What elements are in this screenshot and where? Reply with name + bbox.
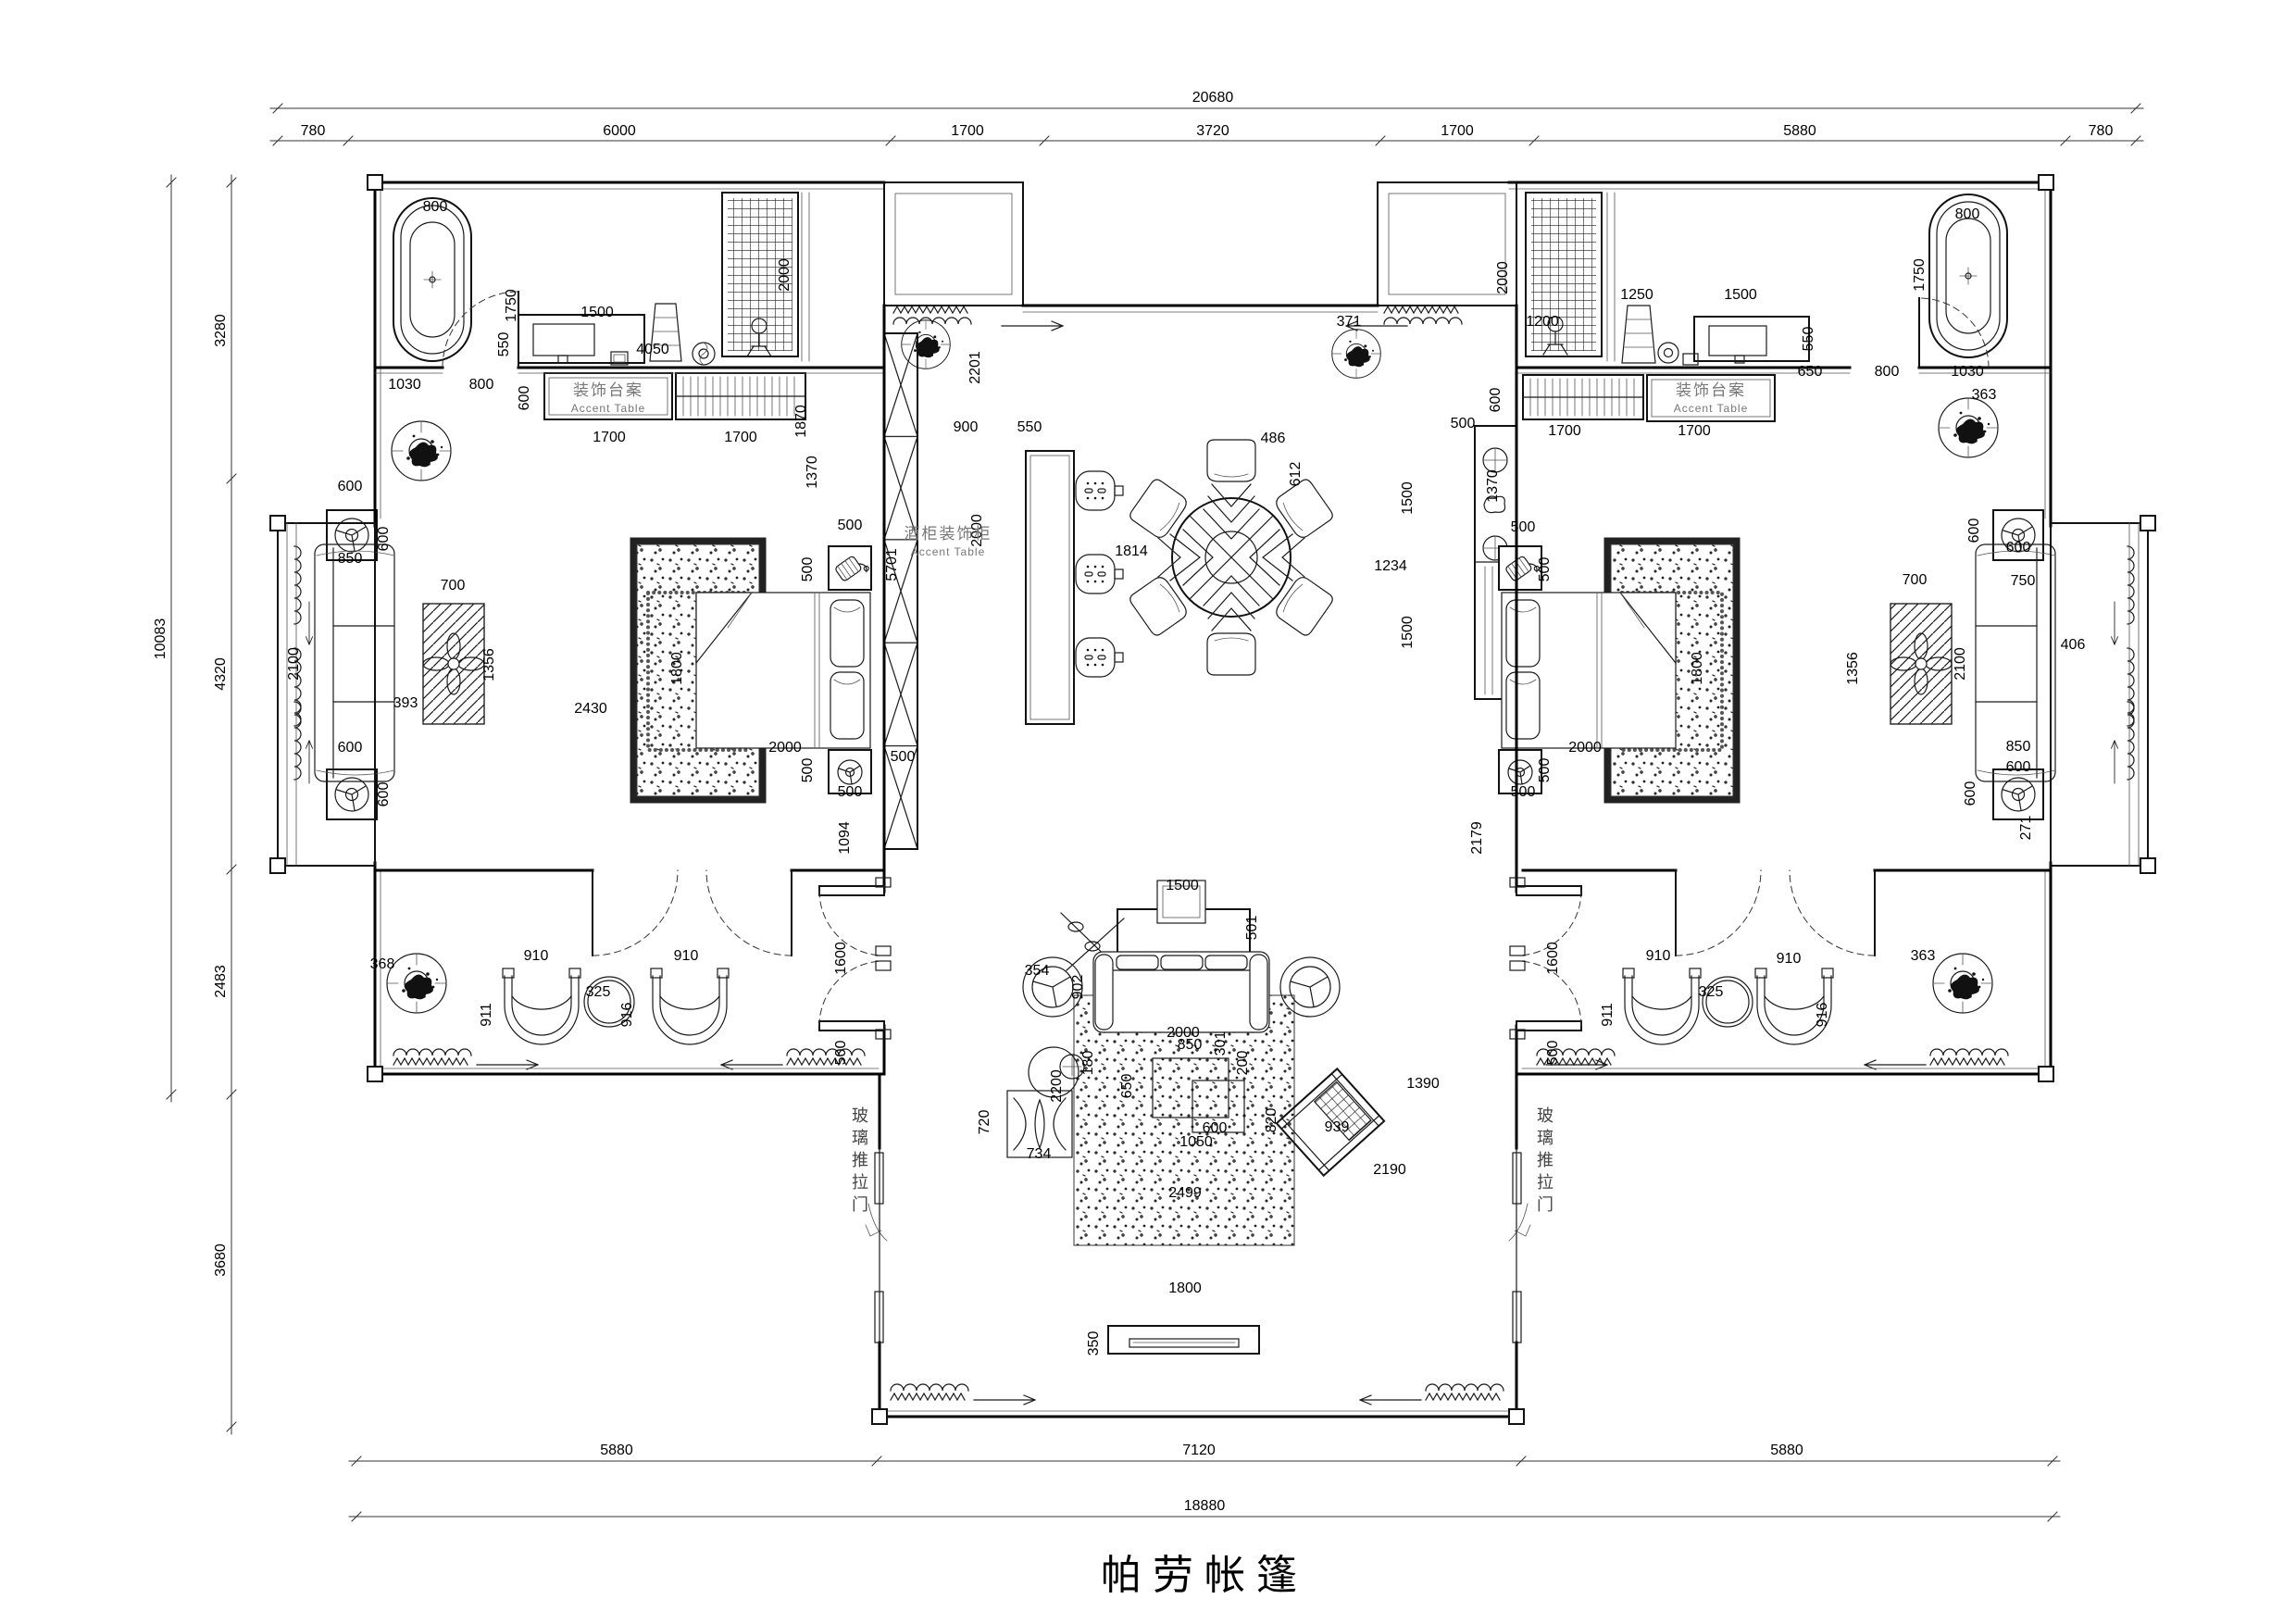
dim-label: 20680 bbox=[1192, 90, 1234, 106]
dim-label: 550 bbox=[1017, 419, 1042, 435]
dim-label: 1500 bbox=[1400, 616, 1416, 649]
drawing-sheet: 2068078060001700372017005880780100833280… bbox=[0, 0, 2296, 1624]
dim-label: 325 bbox=[1699, 984, 1724, 1000]
dim-label: 600 bbox=[2006, 759, 2031, 775]
right-bathroom bbox=[1523, 193, 2007, 457]
dim-label: 850 bbox=[1178, 1037, 1203, 1053]
dim-label: 5880 bbox=[1783, 123, 1816, 139]
dim-label: 600 bbox=[1963, 781, 1978, 806]
dimension-chains bbox=[167, 104, 2143, 1521]
dim-label: 4050 bbox=[636, 342, 669, 357]
dim-label: 1750 bbox=[1912, 258, 1928, 292]
dim-label: 5701 bbox=[884, 548, 900, 581]
glass-door-label-right: 玻璃推拉门 bbox=[1535, 1106, 1554, 1218]
dim-label: 800 bbox=[1955, 206, 1980, 222]
dim-label: 393 bbox=[393, 695, 418, 711]
french-doors-left[interactable] bbox=[819, 878, 891, 1039]
dim-label: 600 bbox=[517, 386, 532, 411]
dim-label: 406 bbox=[2061, 637, 2086, 653]
dim-label: 1500 bbox=[580, 305, 614, 320]
dim-label: 1094 bbox=[837, 821, 853, 855]
dim-label: 612 bbox=[1288, 462, 1304, 487]
dim-label: 3680 bbox=[213, 1243, 229, 1277]
dim-label: 650 bbox=[1798, 364, 1823, 380]
dim-label: 1870 bbox=[793, 405, 809, 438]
dimension-labels: 2068078060001700372017005880780100833280… bbox=[153, 90, 2113, 1514]
dim-label: 1700 bbox=[593, 430, 626, 445]
dim-label: 916 bbox=[619, 1003, 635, 1028]
dim-label: 2483 bbox=[213, 965, 229, 998]
dim-label: 910 bbox=[674, 948, 699, 964]
dim-label: 1700 bbox=[951, 123, 984, 139]
dim-label: 734 bbox=[1027, 1146, 1052, 1162]
dim-label: 4320 bbox=[213, 657, 229, 691]
dim-label: 1370 bbox=[1485, 469, 1501, 503]
dim-label: 600 bbox=[2006, 540, 2031, 556]
dim-label: 800 bbox=[423, 199, 448, 215]
dim-label: 1600 bbox=[1545, 942, 1561, 975]
dim-label: 1800 bbox=[1168, 1280, 1202, 1296]
dim-label: 7120 bbox=[1182, 1443, 1216, 1458]
dim-label: 200 bbox=[1235, 1051, 1251, 1076]
dim-label: 700 bbox=[441, 578, 466, 593]
dim-label: 800 bbox=[1875, 364, 1900, 380]
wine-cabinet-label-cn: 酒柜装饰柜 bbox=[905, 525, 992, 543]
dim-label: 900 bbox=[954, 419, 979, 435]
dim-label: 271 bbox=[2018, 816, 2034, 841]
coffee-table bbox=[1890, 604, 1952, 724]
dim-label: 911 bbox=[479, 1003, 494, 1027]
accent-table-label-right-cn: 装饰台案 bbox=[1676, 381, 1746, 399]
dim-label: 600 bbox=[376, 527, 392, 552]
dim-label: 363 bbox=[1972, 387, 1997, 403]
dim-label: 1356 bbox=[481, 648, 497, 681]
dim-label: 354 bbox=[1025, 963, 1050, 979]
dim-label: 18880 bbox=[1184, 1498, 1226, 1514]
dim-label: 1390 bbox=[1406, 1076, 1440, 1092]
dim-label: 1700 bbox=[1678, 423, 1711, 439]
dim-label: 1500 bbox=[1166, 878, 1199, 893]
dim-label: 500 bbox=[833, 1041, 849, 1066]
dim-label: 1250 bbox=[1620, 287, 1653, 303]
dim-label: 486 bbox=[1261, 431, 1286, 446]
dim-label: 800 bbox=[469, 377, 494, 393]
wine-cabinet-label-en: Accent Table bbox=[911, 545, 986, 558]
dim-label: 910 bbox=[524, 948, 549, 964]
sliding-door-right[interactable] bbox=[1513, 1148, 1521, 1343]
dim-label: 1814 bbox=[1115, 543, 1148, 559]
dim-label: 902 bbox=[1070, 975, 1086, 1000]
dim-label: 1700 bbox=[1548, 423, 1581, 439]
dim-label: 368 bbox=[370, 956, 395, 972]
dim-label: 1370 bbox=[805, 456, 820, 489]
dim-label: 916 bbox=[1815, 1003, 1830, 1028]
dim-label: 500 bbox=[800, 758, 816, 783]
dim-label: 2000 bbox=[1568, 740, 1602, 756]
dim-label: 350 bbox=[1086, 1331, 1102, 1356]
dim-label: 500 bbox=[1537, 758, 1553, 783]
dim-label: 1700 bbox=[1441, 123, 1474, 139]
dim-label: 1030 bbox=[388, 377, 421, 393]
dim-label: 1800 bbox=[669, 652, 685, 685]
dim-label: 1500 bbox=[1400, 481, 1416, 515]
glass-door-label-left: 玻璃推拉门 bbox=[850, 1106, 868, 1218]
drawing-title: 帕劳帐篷 bbox=[1101, 1553, 1308, 1598]
wine-cabinet bbox=[884, 333, 917, 849]
dim-label: 850 bbox=[338, 551, 363, 567]
sliding-door-left[interactable] bbox=[875, 1148, 883, 1343]
dim-label: 600 bbox=[338, 479, 363, 494]
dim-label: 600 bbox=[1966, 518, 1982, 543]
dim-label: 500 bbox=[838, 518, 863, 533]
dim-label: 180 bbox=[1080, 1051, 1096, 1076]
dim-label: 5880 bbox=[600, 1443, 633, 1458]
dim-label: 1356 bbox=[1845, 652, 1861, 685]
dim-label: 371 bbox=[1337, 314, 1362, 330]
dim-label: 1600 bbox=[833, 942, 849, 975]
dim-label: 720 bbox=[977, 1110, 992, 1135]
dim-label: 550 bbox=[496, 332, 512, 357]
dim-label: 363 bbox=[1911, 948, 1936, 964]
dim-label: 2000 bbox=[1495, 261, 1511, 294]
dim-label: 780 bbox=[301, 123, 326, 139]
accent-table-label-left-en: Accent Table bbox=[571, 402, 646, 415]
dim-label: 3720 bbox=[1196, 123, 1229, 139]
dim-label: 10083 bbox=[153, 618, 168, 660]
floor-plan: 2068078060001700372017005880780100833280… bbox=[0, 0, 2296, 1624]
dim-label: 1500 bbox=[1724, 287, 1757, 303]
dim-label: 500 bbox=[800, 557, 816, 582]
dim-label: 2000 bbox=[768, 740, 802, 756]
dim-label: 2200 bbox=[1049, 1069, 1065, 1103]
dim-label: 600 bbox=[376, 782, 392, 807]
dim-label: 910 bbox=[1646, 948, 1671, 964]
dim-label: 650 bbox=[1119, 1074, 1135, 1099]
dim-label: 600 bbox=[338, 740, 363, 756]
dim-label: 500 bbox=[1537, 557, 1553, 582]
dim-label: 325 bbox=[586, 984, 611, 1000]
dim-label: 780 bbox=[2089, 123, 2114, 139]
dim-label: 500 bbox=[838, 784, 863, 800]
dim-label: 500 bbox=[1451, 416, 1476, 431]
dim-label: 750 bbox=[2011, 573, 2036, 589]
dim-label: 1750 bbox=[504, 289, 519, 322]
dim-label: 1030 bbox=[1951, 364, 1984, 380]
accent-table-label-right-en: Accent Table bbox=[1674, 402, 1749, 415]
dim-label: 2179 bbox=[1469, 821, 1485, 855]
dim-label: 301 bbox=[1213, 1031, 1229, 1056]
dim-label: 1200 bbox=[1526, 314, 1559, 330]
bed bbox=[696, 593, 870, 748]
dim-label: 500 bbox=[1511, 784, 1536, 800]
dim-label: 550 bbox=[1801, 327, 1816, 352]
dim-label: 3280 bbox=[213, 314, 229, 347]
dim-label: 820 bbox=[1264, 1108, 1279, 1133]
accent-table-label-left-cn: 装饰台案 bbox=[573, 381, 643, 399]
dim-label: 1234 bbox=[1374, 558, 1407, 574]
dim-label: 500 bbox=[891, 749, 916, 765]
media-console bbox=[1108, 1326, 1259, 1354]
dim-label: 1800 bbox=[1690, 652, 1705, 685]
dim-label: 2201 bbox=[967, 351, 983, 384]
dining-area bbox=[884, 333, 1516, 849]
dim-label: 2100 bbox=[1953, 647, 1968, 681]
dim-label: 1700 bbox=[724, 430, 757, 445]
dim-label: 911 bbox=[1600, 1003, 1616, 1027]
bed bbox=[1502, 593, 1676, 748]
dim-label: 600 bbox=[1488, 388, 1504, 413]
dim-label: 850 bbox=[2006, 739, 2031, 755]
dim-label: 2100 bbox=[286, 647, 302, 681]
dim-label: 2499 bbox=[1168, 1185, 1202, 1201]
dim-label: 2000 bbox=[777, 258, 792, 292]
dim-label: 500 bbox=[1545, 1041, 1561, 1066]
left-bay-window bbox=[294, 510, 484, 819]
dim-label: 5880 bbox=[1770, 1443, 1803, 1458]
dim-label: 501 bbox=[1244, 916, 1260, 941]
coffee-table bbox=[423, 604, 484, 724]
dining-table bbox=[1158, 484, 1304, 631]
dim-label: 910 bbox=[1777, 951, 1802, 967]
dim-label: 2190 bbox=[1373, 1162, 1406, 1178]
sofa bbox=[1093, 952, 1269, 1032]
dim-label: 939 bbox=[1325, 1119, 1350, 1135]
dim-label: 6000 bbox=[603, 123, 636, 139]
dim-label: 700 bbox=[1903, 572, 1928, 588]
dim-label: 2430 bbox=[574, 701, 607, 717]
dim-label: 1050 bbox=[1179, 1134, 1213, 1150]
dim-label: 500 bbox=[1511, 519, 1536, 535]
